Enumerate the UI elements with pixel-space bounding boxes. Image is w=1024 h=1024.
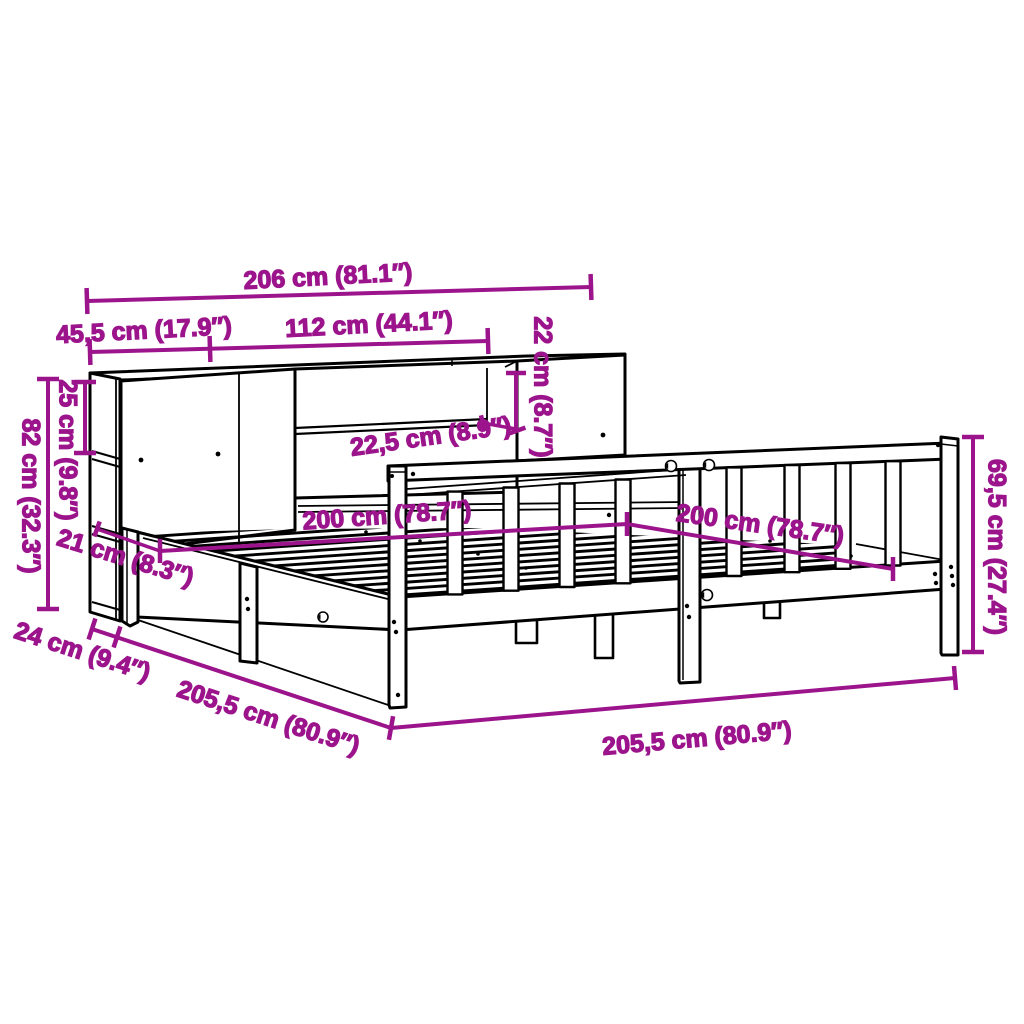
svg-text:82 cm (32.3″): 82 cm (32.3″) (16, 418, 44, 573)
svg-text:25 cm (9.8″): 25 cm (9.8″) (53, 379, 81, 520)
svg-text:22 cm (8.7″): 22 cm (8.7″) (528, 316, 556, 457)
svg-text:69,5 cm (27.4″): 69,5 cm (27.4″) (982, 459, 1010, 635)
